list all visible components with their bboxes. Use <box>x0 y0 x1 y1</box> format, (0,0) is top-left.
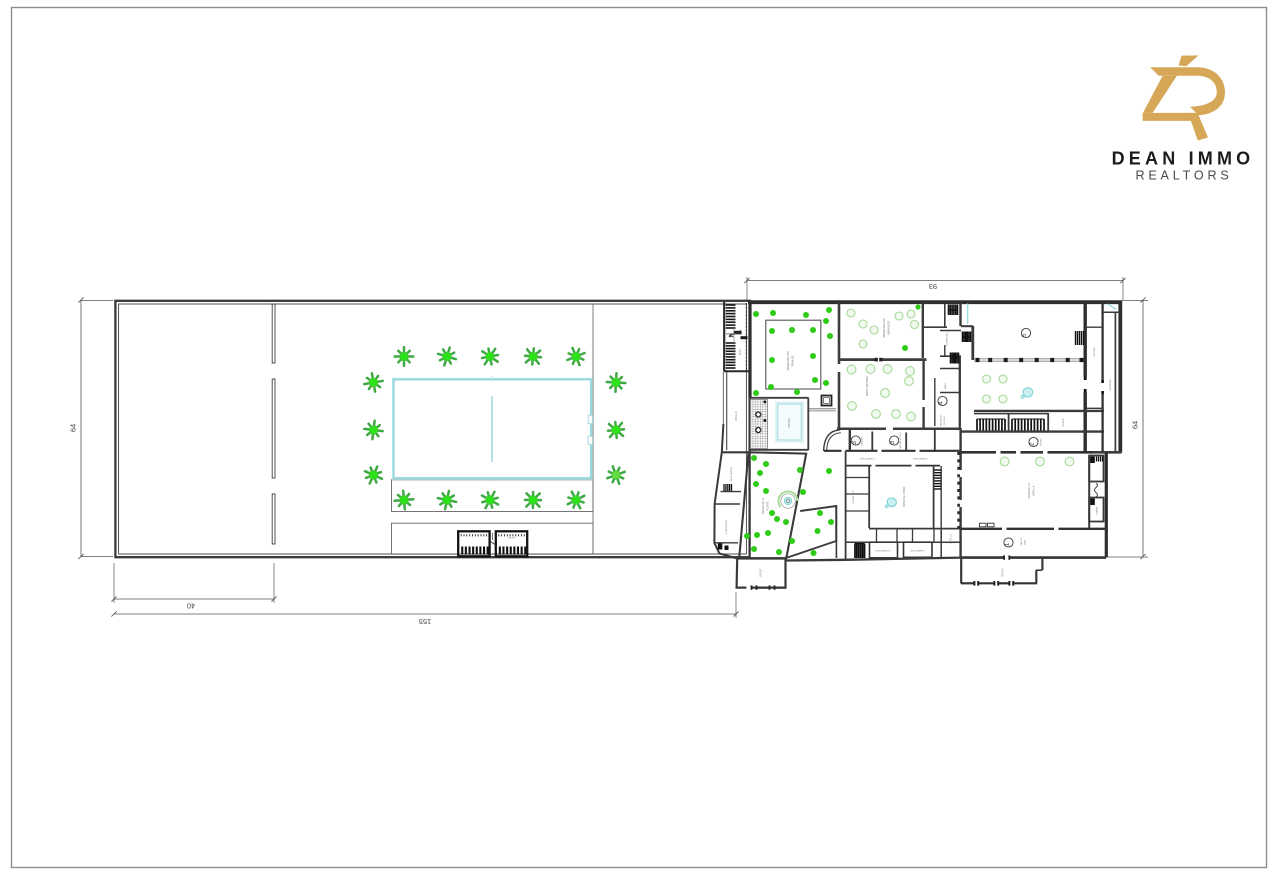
svg-text:3: 3 <box>889 440 896 444</box>
svg-text:SALIDA DEL: SALIDA DEL <box>940 414 943 426</box>
svg-text:64: 64 <box>69 424 78 432</box>
svg-text:OFICIO: OFICIO <box>1003 568 1005 576</box>
svg-text:155: 155 <box>419 617 432 626</box>
svg-text:CAPILLA: CAPILLA <box>1033 486 1036 497</box>
svg-text:OFICIO: OFICIO <box>1062 418 1065 426</box>
svg-text:PASILLO: PASILLO <box>735 411 738 421</box>
svg-text:FUENTE: FUENTE <box>767 501 770 511</box>
svg-text:ASEO: ASEO <box>739 349 742 355</box>
svg-text:1: 1 <box>1004 542 1011 546</box>
svg-text:PATIO DEL POZO: PATIO DEL POZO <box>903 487 906 507</box>
svg-text:5: 5 <box>1021 333 1028 337</box>
svg-text:40: 40 <box>187 602 195 611</box>
svg-text:FRAILES: FRAILES <box>791 355 795 366</box>
svg-text:JARDIN DE LOS: JARDIN DE LOS <box>882 318 886 338</box>
svg-text:MOLINO: MOLINO <box>944 416 946 424</box>
svg-text:DORMITORIOS: DORMITORIOS <box>726 519 728 534</box>
svg-text:JARDIN DE LOS: JARDIN DE LOS <box>786 351 790 371</box>
svg-text:PATIO CENTRAL: PATIO CENTRAL <box>865 375 869 396</box>
svg-text:JARDIN DE LA: JARDIN DE LA <box>762 497 765 514</box>
svg-text:DESCUBIERTO: DESCUBIERTO <box>876 551 891 553</box>
svg-text:DESCUBIERTO: DESCUBIERTO <box>910 551 925 553</box>
svg-text:NARANJOS: NARANJOS <box>887 321 891 335</box>
svg-text:DORMITORIO: DORMITORIO <box>947 332 949 345</box>
svg-text:SALON: SALON <box>508 537 516 540</box>
svg-text:OFICINA: OFICINA <box>1093 347 1096 356</box>
svg-text:REAL: REAL <box>1024 538 1027 544</box>
svg-text:OFICIO: OFICIO <box>760 569 763 577</box>
svg-text:SALA DEL MOLINO: SALA DEL MOLINO <box>899 432 902 449</box>
svg-text:CAPILLA: CAPILLA <box>950 534 953 544</box>
svg-text:MOLINO: MOLINO <box>1041 438 1043 446</box>
svg-text:PATIO DE LA: PATIO DE LA <box>1028 483 1031 498</box>
svg-text:64: 64 <box>1131 421 1140 429</box>
svg-text:3: 3 <box>851 440 858 444</box>
svg-text:SALON: SALON <box>1020 538 1023 546</box>
svg-text:REALTORS: REALTORS <box>1135 169 1232 183</box>
svg-text:SALA DEL: SALA DEL <box>861 437 864 446</box>
svg-text:DEAN IMMO: DEAN IMMO <box>1112 149 1255 169</box>
svg-text:PISCINA: PISCINA <box>788 418 791 428</box>
svg-text:DORMITORIO: DORMITORIO <box>853 490 855 503</box>
svg-text:DESCUBIERTO: DESCUBIERTO <box>731 466 733 481</box>
svg-text:DESCUBIERTO: DESCUBIERTO <box>860 458 875 460</box>
svg-text:DESCUBIERTO: DESCUBIERTO <box>913 458 928 460</box>
svg-text:4: 4 <box>938 401 945 405</box>
svg-text:93: 93 <box>929 282 937 291</box>
svg-text:2: 2 <box>1029 442 1036 446</box>
svg-text:CUADRA: CUADRA <box>1096 506 1099 515</box>
svg-text:BANO: BANO <box>944 383 947 389</box>
svg-text:DESPENSA: DESPENSA <box>1109 379 1112 391</box>
